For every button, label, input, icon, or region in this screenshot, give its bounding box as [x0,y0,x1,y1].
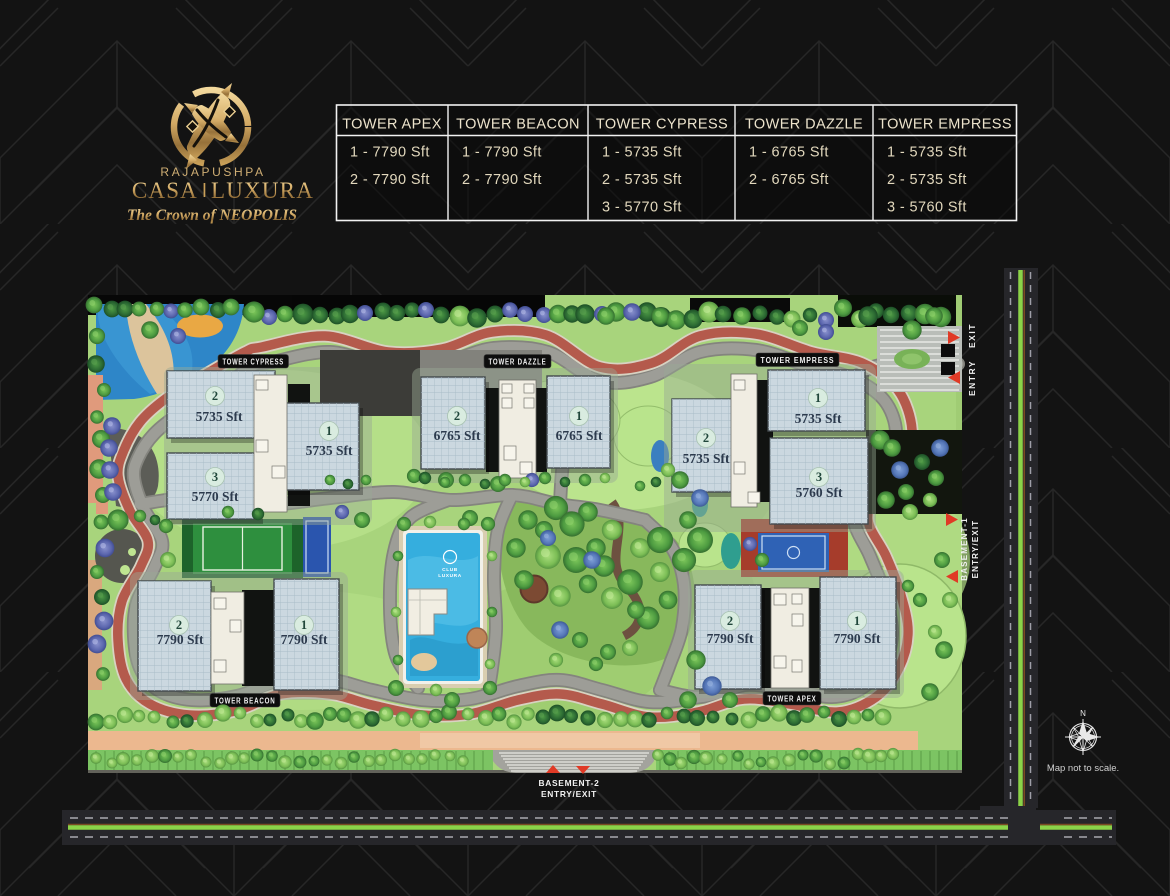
svg-text:CASA: CASA [132,178,198,203]
svg-text:7790 Sft: 7790 Sft [834,631,881,646]
svg-text:LUXURA: LUXURA [211,178,314,203]
svg-text:TOWER EMPRESS: TOWER EMPRESS [878,117,1012,133]
svg-text:2 - 7790 Sft: 2 - 7790 Sft [462,172,542,188]
svg-text:2: 2 [212,389,218,403]
svg-text:7790 Sft: 7790 Sft [157,632,204,647]
svg-text:5735 Sft: 5735 Sft [795,411,842,426]
svg-text:TOWER BEACON: TOWER BEACON [456,117,580,133]
svg-text:BASEMENT-1: BASEMENT-1 [960,517,969,581]
svg-text:1 - 6765 Sft: 1 - 6765 Sft [749,145,829,161]
svg-text:TOWER CYPRESS: TOWER CYPRESS [223,357,285,366]
svg-text:TOWER DAZZLE: TOWER DAZZLE [489,357,547,366]
svg-text:ENTRY/EXIT: ENTRY/EXIT [971,520,980,579]
svg-text:2: 2 [703,431,709,445]
svg-text:1: 1 [854,614,860,628]
svg-text:5735 Sft: 5735 Sft [196,409,243,424]
svg-text:2: 2 [727,614,733,628]
svg-text:1 - 7790 Sft: 1 - 7790 Sft [350,145,430,161]
svg-text:LUXURA: LUXURA [438,573,462,579]
svg-text:1 - 5735 Sft: 1 - 5735 Sft [887,145,967,161]
svg-text:5735 Sft: 5735 Sft [306,443,353,458]
svg-text:TOWER CYPRESS: TOWER CYPRESS [596,117,728,133]
svg-text:3 - 5760 Sft: 3 - 5760 Sft [887,200,967,216]
svg-text:ENTRY: ENTRY [967,360,977,396]
svg-text:3: 3 [212,470,218,484]
svg-text:5760 Sft: 5760 Sft [796,485,843,500]
svg-text:2 - 5735 Sft: 2 - 5735 Sft [602,172,682,188]
svg-text:1: 1 [576,409,582,423]
svg-text:1 - 5735 Sft: 1 - 5735 Sft [602,145,682,161]
svg-text:1: 1 [301,618,307,632]
svg-text:7790 Sft: 7790 Sft [281,632,328,647]
svg-text:3 - 5770 Sft: 3 - 5770 Sft [602,200,682,216]
svg-text:CLUB: CLUB [442,567,458,573]
svg-text:7790 Sft: 7790 Sft [707,631,754,646]
svg-text:1 - 7790 Sft: 1 - 7790 Sft [462,145,542,161]
svg-text:BASEMENT-2: BASEMENT-2 [539,778,600,788]
svg-text:1: 1 [326,424,332,438]
svg-text:ENTRY/EXIT: ENTRY/EXIT [541,789,597,799]
svg-text:5770 Sft: 5770 Sft [192,489,239,504]
svg-text:1: 1 [815,391,821,405]
svg-text:TOWER BEACON: TOWER BEACON [215,696,276,705]
svg-text:TOWER APEX: TOWER APEX [768,694,817,703]
svg-text:2: 2 [454,409,460,423]
svg-text:The Crown of NEOPOLIS: The Crown of NEOPOLIS [127,207,297,224]
svg-text:2 - 6765 Sft: 2 - 6765 Sft [749,172,829,188]
svg-text:5735 Sft: 5735 Sft [683,451,730,466]
svg-text:2 - 5735 Sft: 2 - 5735 Sft [887,172,967,188]
svg-text:2 - 7790 Sft: 2 - 7790 Sft [350,172,430,188]
svg-text:TOWER APEX: TOWER APEX [342,117,442,133]
svg-text:TOWER EMPRESS: TOWER EMPRESS [761,356,835,365]
svg-text:6765 Sft: 6765 Sft [434,428,481,443]
svg-text:6765 Sft: 6765 Sft [556,428,603,443]
svg-text:2: 2 [176,618,182,632]
svg-text:3: 3 [816,470,822,484]
svg-text:EXIT: EXIT [967,323,977,348]
svg-text:N: N [1080,709,1086,718]
svg-text:Map not to scale.: Map not to scale. [1047,763,1119,774]
svg-text:RAJAPUSHPA: RAJAPUSHPA [160,165,265,179]
svg-text:TOWER DAZZLE: TOWER DAZZLE [745,117,863,133]
